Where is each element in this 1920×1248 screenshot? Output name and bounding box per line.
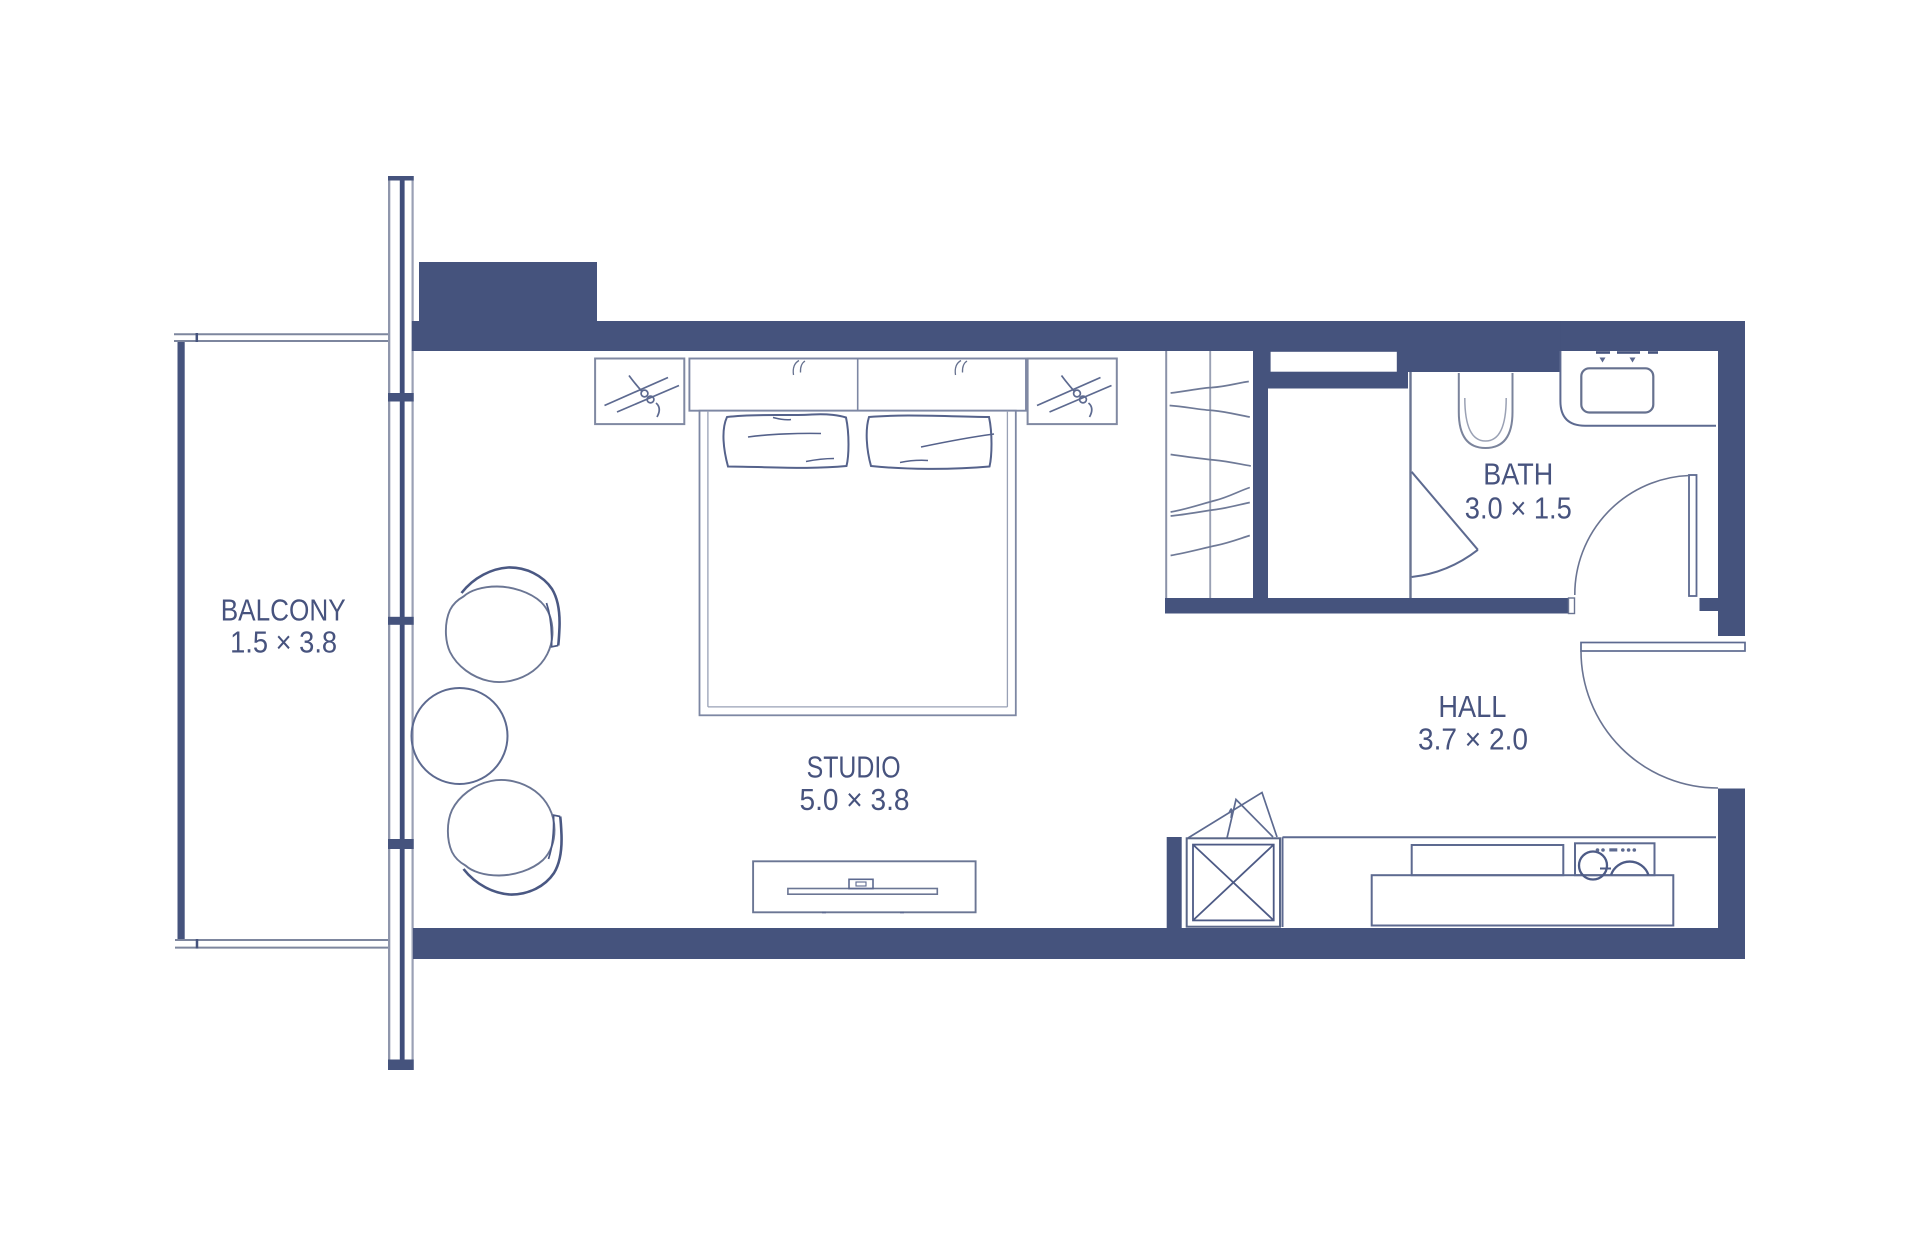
svg-text:BALCONY: BALCONY [221,593,346,628]
svg-text:BATH: BATH [1483,457,1553,492]
svg-text:STUDIO: STUDIO [807,750,901,785]
svg-text:5.0 × 3.8: 5.0 × 3.8 [800,782,910,817]
svg-text:HALL: HALL [1438,689,1506,724]
svg-text:1.5 × 3.8: 1.5 × 3.8 [230,625,337,660]
svg-text:3.0 × 1.5: 3.0 × 1.5 [1465,491,1572,526]
svg-text:3.7 × 2.0: 3.7 × 2.0 [1418,722,1528,757]
